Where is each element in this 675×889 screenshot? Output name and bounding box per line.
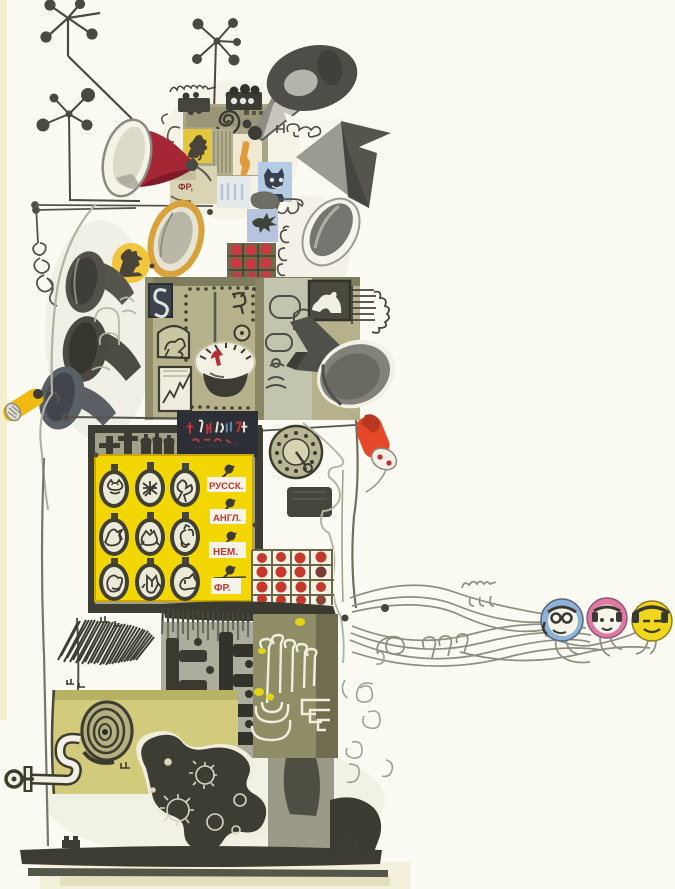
svg-text:АНГЛ.: АНГЛ. bbox=[213, 513, 241, 524]
svg-text:ФР,: ФР, bbox=[178, 182, 193, 192]
svg-text:НЕМ.: НЕМ. bbox=[213, 547, 238, 558]
svg-text:ФР.: ФР. bbox=[214, 583, 231, 594]
svg-text:РУССК.: РУССК. bbox=[209, 481, 243, 492]
